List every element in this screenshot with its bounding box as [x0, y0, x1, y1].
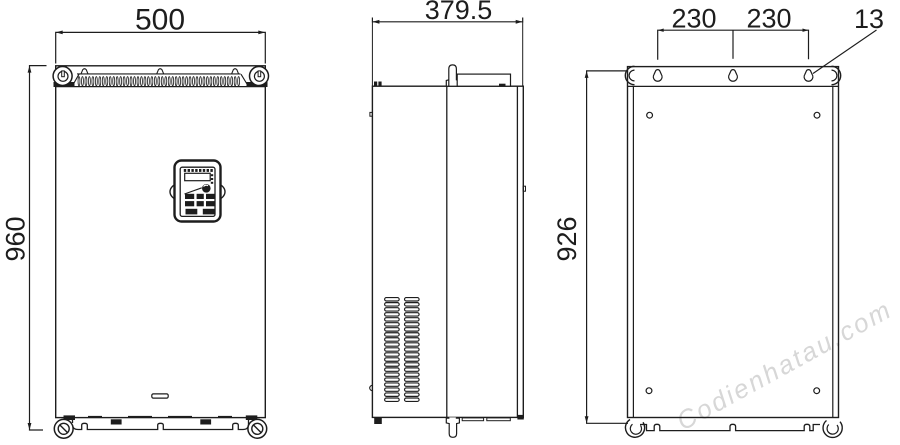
svg-text:230: 230 — [671, 4, 716, 34]
svg-text:230: 230 — [746, 4, 791, 34]
svg-text:960: 960 — [1, 216, 31, 261]
svg-text:379.5: 379.5 — [425, 0, 493, 25]
svg-text:500: 500 — [135, 4, 185, 37]
svg-text:13: 13 — [854, 4, 884, 34]
svg-text:926: 926 — [552, 216, 582, 261]
